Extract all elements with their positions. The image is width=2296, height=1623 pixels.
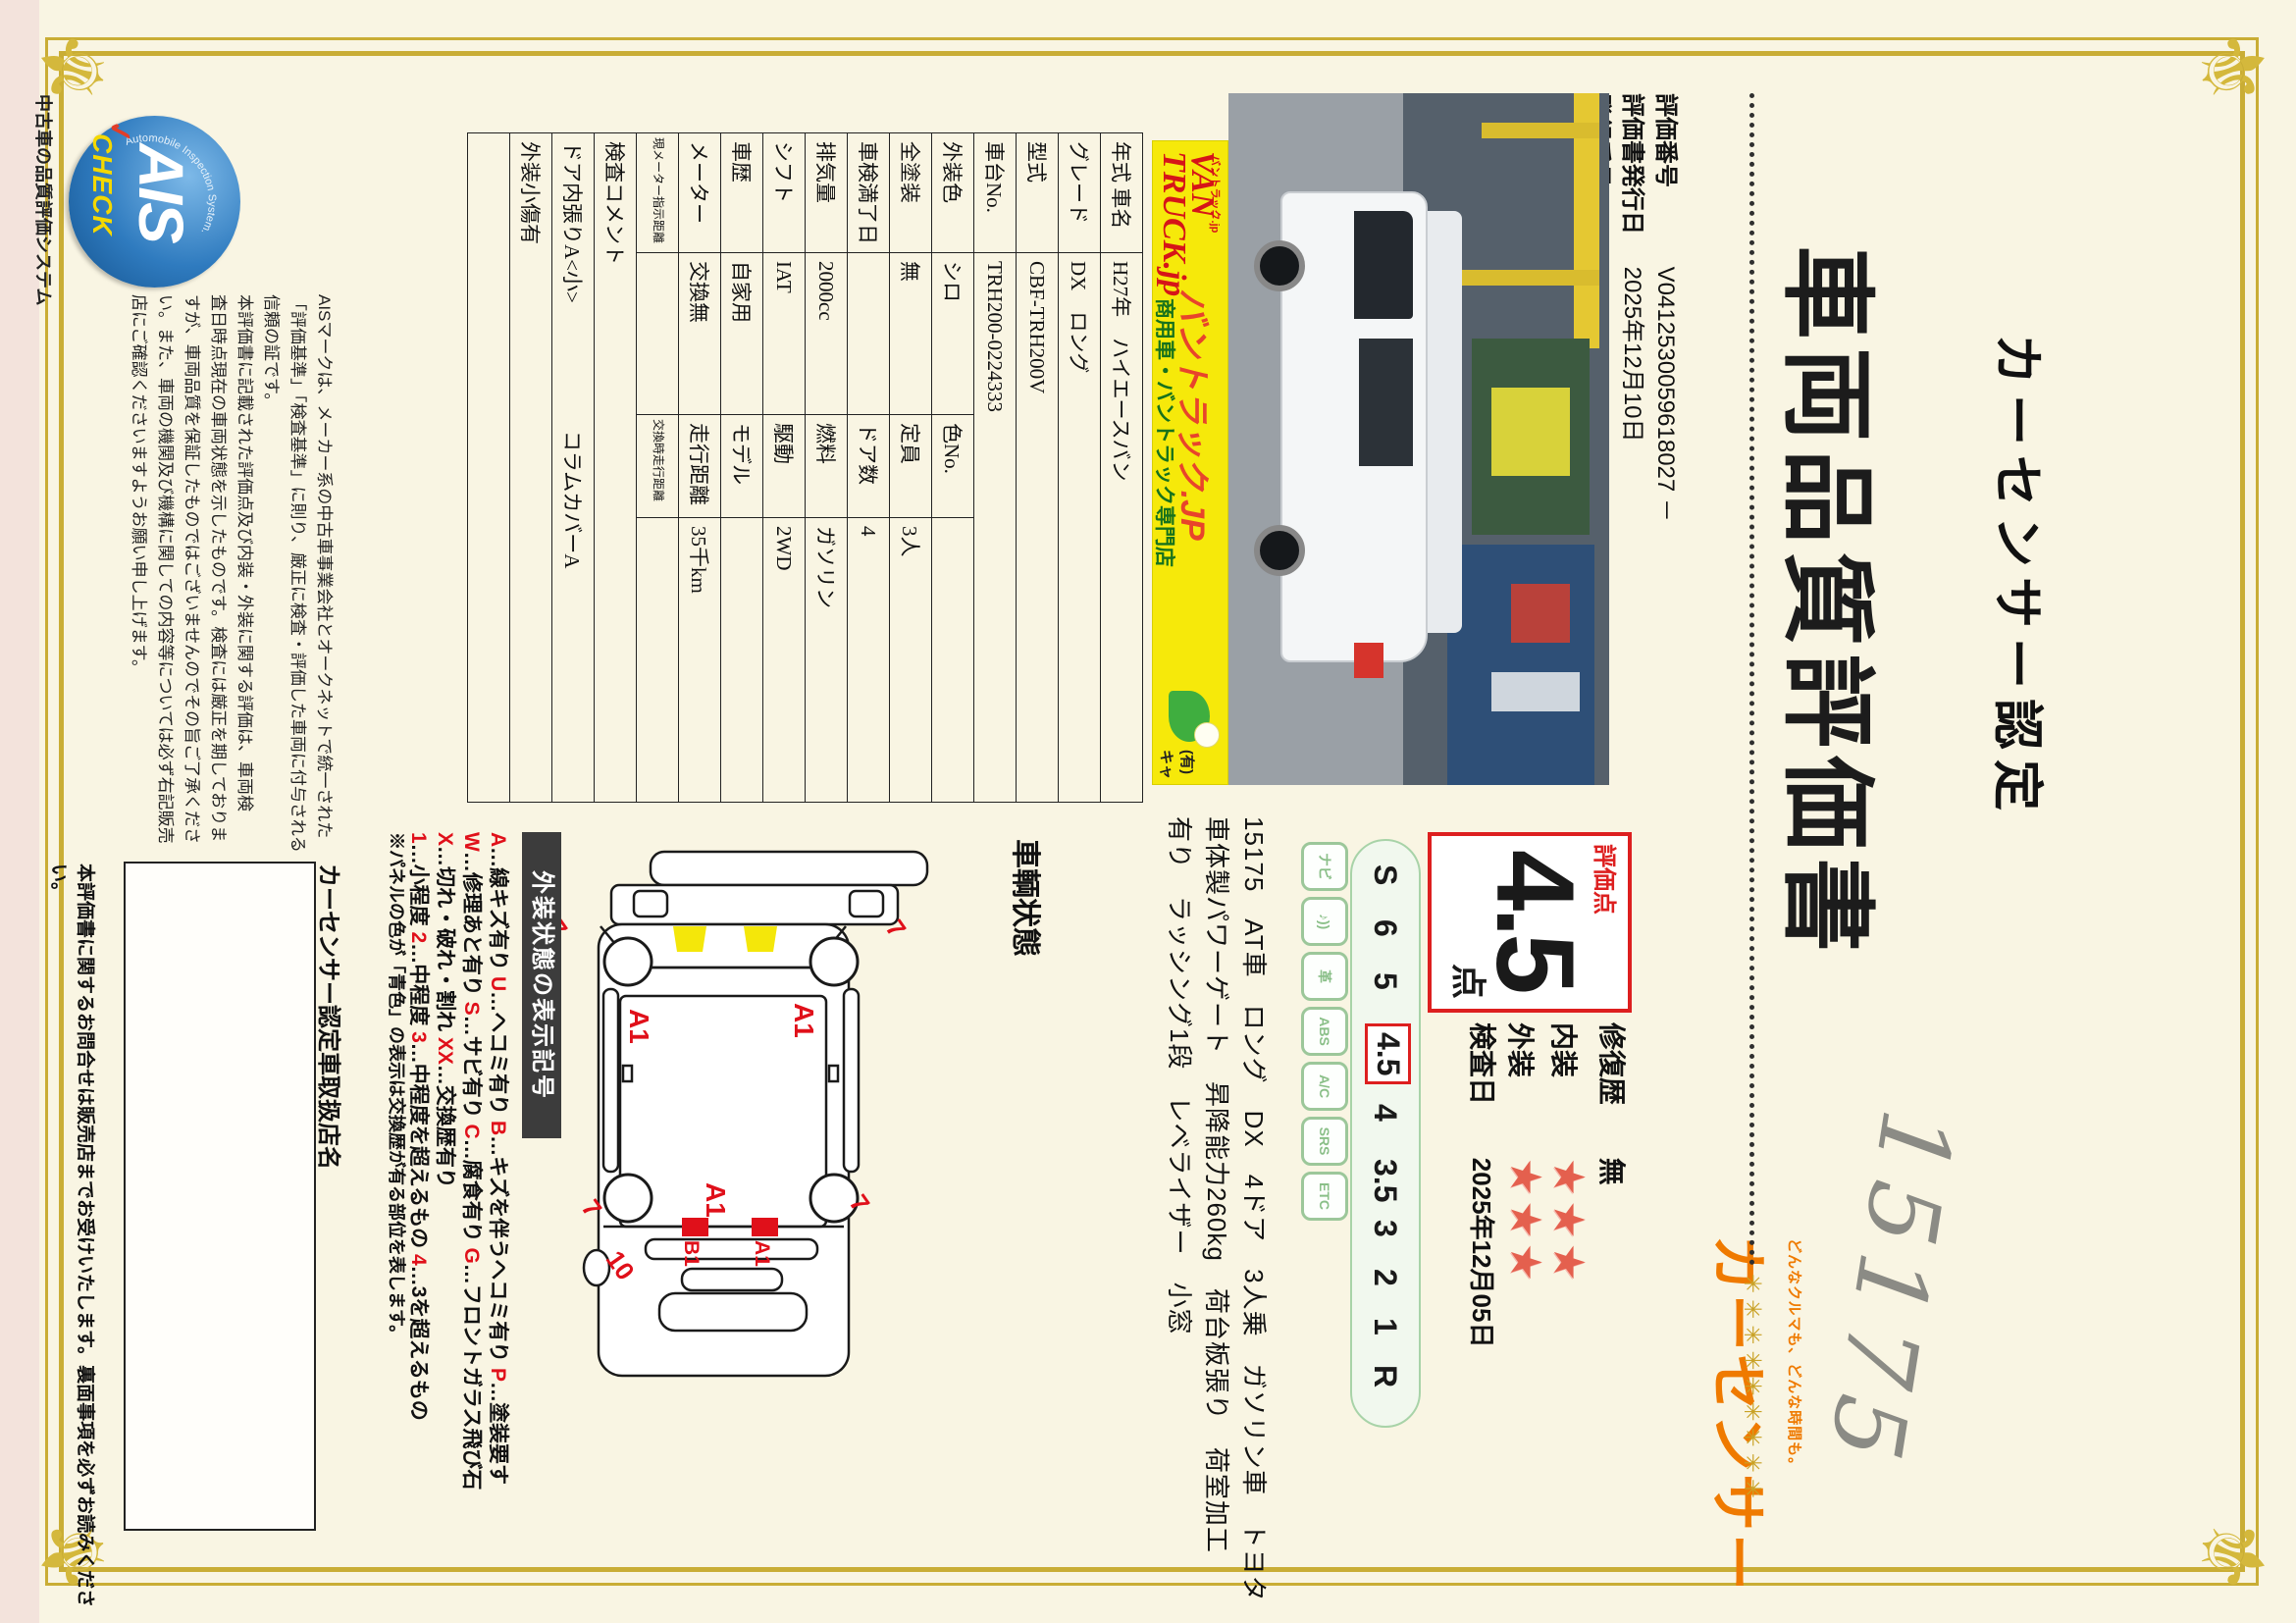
spec-cell: 車台No. (974, 133, 1017, 253)
interior-label: 内装 (1545, 1022, 1585, 1150)
spec-cell: 燃料 (806, 415, 848, 518)
legend-description: …腐食有り (460, 1139, 483, 1248)
spec-cell: 2000cc (806, 253, 848, 415)
legend-row: A…線キズ有り U…ヘコミ有り B…キズを伴うヘコミ有り P…塗装要す (485, 832, 514, 1485)
evaluation-number-value: V0412530059618027 － (1652, 267, 1679, 522)
disclaimer-text: AISマークは、メーカー系の中古車事業会社とオークネットで統一された「評価基準」… (126, 294, 338, 854)
spec-cell (721, 518, 763, 803)
spec-comment-row: 外装小傷有 (510, 133, 552, 803)
spec-row: グレードDX ロング (1059, 133, 1101, 803)
spec-cell: 2WD (763, 518, 806, 803)
photo-crane-post (1462, 270, 1599, 286)
legend-description: …線キズ有り (487, 847, 509, 976)
spec-cell: 3人 (890, 518, 932, 803)
vantruck-banner: バントラック.jp VAN TRUCK.jp バントラック.JP 商用車・バント… (1152, 140, 1228, 785)
damage-code: A1 (751, 1240, 773, 1267)
spec-cell (848, 253, 890, 415)
spec-row: シフトIAT駆動2WD (763, 133, 806, 803)
vehicle-photo (1228, 93, 1609, 785)
headlight (850, 891, 883, 916)
spec-cell: 色No. (932, 415, 974, 518)
disclaimer-line: すが、車両品質を保証したものではございませんのでその旨ご了承くださ (179, 294, 205, 854)
legend-description: …小程度 (407, 844, 430, 932)
spec-row: 車歴自家用モデル (721, 133, 763, 803)
van-side-window (1359, 339, 1413, 466)
spec-row: 現メーター指示距離交換時走行距離 (637, 133, 679, 803)
exterior-rating-row: 外装 ★★★ (1500, 1022, 1550, 1285)
van-windshield (1354, 211, 1413, 319)
disclaimer-line: い。また、車両の機関及び機構に関しての内容等については必ず右記販売 (152, 294, 179, 854)
dealer-name-box (124, 862, 316, 1531)
banner-subtitle: 商用車・バントラック専門店 (1152, 298, 1180, 567)
van-wheel (1254, 525, 1305, 576)
van-wheel (1254, 240, 1305, 291)
legend-symbol: 2 (407, 932, 430, 944)
legend-description: …中程度 (407, 943, 430, 1031)
repair-history-label: 修復歴 (1593, 1022, 1633, 1150)
spec-row: 全塗装無定員3人 (890, 133, 932, 803)
exterior-label: 外装 (1502, 1022, 1541, 1150)
gate-bar (682, 1269, 782, 1290)
legend-symbol: U (487, 976, 509, 991)
spec-cell: CBF-TRH200V (1017, 253, 1059, 803)
spec-table: 年式 車名H27年 ハイエースバングレードDX ロング型式CBF-TRH200V… (467, 132, 1143, 803)
ais-check-label: CHECK (86, 133, 118, 236)
door-handle (829, 1066, 838, 1081)
legend-description: …フロントガラス飛び石 (460, 1264, 483, 1491)
spec-cell: モデル (721, 415, 763, 518)
disclaimer-line: 店にご確認くださいますようお願い申し上げます。 (126, 294, 152, 854)
certification-label: カーセンサー認定 (1985, 334, 2059, 1001)
fleur-de-lis-icon: ⚜ (2175, 17, 2288, 124)
spec-row: メーター交換無走行距離35千km (679, 133, 721, 803)
spec-cell: 型式 (1017, 133, 1059, 253)
side-rail-top (844, 989, 859, 1172)
spec-row: 車検満了日ドア数4 (848, 133, 890, 803)
legend-description: …切れ・破れ・割れ (434, 846, 456, 1037)
legend-description: …サビ有り (460, 1016, 483, 1125)
legend-description: …塗装要す (487, 1382, 509, 1485)
equipment-line-2: 車体製パワーゲート 昇降能力260kg 荷台板張り 荷室加工 (1200, 816, 1236, 1553)
page-title: 車両品質評価書 (1767, 245, 1904, 1050)
power-gate-platform (659, 1293, 807, 1331)
spec-row: 排気量2000cc燃料ガソリン (806, 133, 848, 803)
spec-comment-cell: 検査コメント (595, 133, 637, 803)
banner-company: (有)キャン (1152, 750, 1198, 784)
inspection-date-value: 2025年12月05日 (1467, 1158, 1496, 1348)
scale-value: 3.5 (1367, 1159, 1403, 1202)
spec-cell: グレード (1059, 133, 1101, 253)
legend-symbol: G (460, 1248, 483, 1264)
rating-score-unit: 点 (1445, 964, 1496, 999)
inspection-date-row: 検査日 2025年12月05日 (1464, 1022, 1503, 1347)
spec-comment-cell (468, 133, 510, 803)
scale-selected-value: 4.5 (1365, 1023, 1411, 1084)
etc-icon: ETC (1301, 1172, 1348, 1221)
rating-score-box: 評価点 4.5 点 (1428, 832, 1632, 1013)
legend-description: …3を超えるもの (407, 1266, 430, 1421)
spec-cell: 駆動 (763, 415, 806, 518)
scale-value: 5 (1367, 972, 1403, 990)
spec-cell: シフト (763, 133, 806, 253)
legend-description: …中程度を超えるもの (407, 1043, 430, 1254)
legend-symbol: C (460, 1125, 483, 1139)
legend-description: …交換歴有り (434, 1065, 456, 1188)
spec-cell: 現メーター指示距離 (637, 133, 679, 253)
wheel (810, 938, 858, 985)
legend-row: W…修理あと有り S…サビ有り C…腐食有り G…フロントガラス飛び石 (458, 832, 488, 1490)
spec-cell: 年式 車名 (1101, 133, 1143, 253)
damage-code: A1 (789, 1003, 819, 1038)
banner-logo-text: VAN TRUCK.jp (1159, 151, 1216, 296)
interior-rating-row: 内装 ★★★ (1543, 1022, 1593, 1285)
spec-cell: 車歴 (721, 133, 763, 253)
spec-cell (932, 518, 974, 803)
front-bumper (651, 852, 927, 885)
issue-date-value: 2025年12月10日 (1619, 267, 1645, 443)
legend-symbol: 4 (407, 1254, 430, 1266)
scanned-certificate: ⚜ ⚜ ⚜ ⚜ カーセンサー認定 車両品質評価書 どんなクルマも、どんな時間も。… (0, 0, 2296, 1623)
navi-icon: ナビ (1301, 842, 1348, 891)
scale-value: R (1367, 1365, 1403, 1387)
legend-symbol: A (487, 832, 509, 847)
legend-description: …ヘコミ有り (487, 991, 509, 1121)
fleur-de-lis-icon: ⚜ (2175, 1499, 2288, 1606)
vehicle-diagram: A1 A1 A1 A1 B1 7 7 7 7 10 (525, 824, 1060, 1442)
photo-truckbed (1447, 545, 1594, 785)
side-rail-bottom (603, 989, 618, 1172)
spec-cell: ドア数 (848, 415, 890, 518)
legend-row: X…切れ・破れ・割れ XX…交換歴有り (432, 832, 461, 1188)
audio-icon: ♪)) (1301, 897, 1348, 946)
door-handle (623, 1066, 632, 1081)
equipment-line-1: 15175 AT車 ロング DX 4ドア 3人乗 ガソリン車 トヨタ (1237, 816, 1274, 1602)
spec-cell: シロ (932, 253, 974, 415)
abs-icon: ABS (1301, 1007, 1348, 1056)
damage-code: A1 (624, 1009, 654, 1044)
inspection-date-label: 検査日 (1464, 1022, 1503, 1150)
damage-code: A1 (701, 1182, 731, 1218)
disclaimer-line: 査日時点現在の車両状態を示したものです。検査には厳正を期しておりま (205, 294, 232, 854)
photo-shop-sign (1491, 388, 1570, 476)
spec-cell: 車検満了日 (848, 133, 890, 253)
spec-cell: 定員 (890, 415, 932, 518)
airbag-icon: SRS (1301, 1117, 1348, 1166)
spec-comment-row: ドア内張りA<小>コラムカバーA (552, 133, 595, 803)
photo-crane-post (1482, 123, 1599, 138)
legend-symbol: S (460, 1002, 483, 1016)
spec-cell: TRH200-0224333 (974, 253, 1017, 803)
legend-symbol: B (487, 1121, 509, 1135)
repair-history-row: 修復歴 無 (1593, 1022, 1633, 1185)
issue-date-row: 評価書発行日 2025年12月10日 (1618, 93, 1652, 442)
spec-row: 型式CBF-TRH200V (1017, 133, 1059, 803)
legend-symbol: X (434, 832, 456, 846)
scale-value: 3 (1367, 1220, 1403, 1237)
van-tail-lamp (1354, 643, 1383, 678)
legend-note: ※パネルの色が「青色」の表示は交換歴が有る部位を表します。 (385, 832, 410, 1342)
issue-date-label: 評価書発行日 (1618, 93, 1652, 260)
disclaimer-line: AISマークは、メーカー系の中古車事業会社とオークネットで統一された (311, 294, 338, 854)
spec-comment-extra: コラムカバーA (560, 303, 584, 569)
spec-cell (637, 253, 679, 415)
legend-symbol: XX (434, 1037, 456, 1065)
damage-code: B1 (680, 1240, 703, 1267)
scale-value: 2 (1367, 1269, 1403, 1286)
ais-logo: Automobile Inspection System. AIS ✓ CHEC… (69, 116, 240, 288)
legend-description: …修理あと有り (460, 852, 483, 1002)
banner-truck: TRUCK.jp (1156, 151, 1192, 296)
spec-cell: 交換時走行距離 (637, 415, 679, 518)
spec-cell: 走行距離 (679, 415, 721, 518)
banner-mascot-face (1194, 722, 1220, 748)
legend-header: 外装状態の表示記号 (522, 832, 561, 1138)
spec-cell: DX ロング (1059, 253, 1101, 803)
spec-row: 年式 車名H27年 ハイエースバン (1101, 133, 1143, 803)
scale-value: 1 (1367, 1318, 1403, 1335)
scale-value: S (1367, 864, 1403, 885)
legend-symbol: W (460, 832, 483, 852)
photo-mast (1491, 672, 1580, 711)
stars-decoration: ✳✳✳✳✳✳✳✳✳ (1738, 1274, 1766, 1504)
damage-yellow-mark (673, 926, 706, 952)
spec-comment-row (468, 133, 510, 803)
spec-cell: IAT (763, 253, 806, 415)
disclaimer-line: 「評価基準」「検査基準」に則り、厳正に検査・評価した車両に付与される (285, 294, 311, 854)
headlight (634, 891, 667, 916)
dealer-name-label: カーセンサー認定車取扱店名 (314, 864, 348, 1170)
spec-cell: 自家用 (721, 253, 763, 415)
repair-history-value: 無 (1596, 1158, 1627, 1185)
damage-red-mark (752, 1218, 778, 1236)
spec-cell: 交換無 (679, 253, 721, 415)
spec-comment-cell: ドア内張りA<小>コラムカバーA (552, 133, 595, 803)
spec-cell: 外装色 (932, 133, 974, 253)
spec-cell: 排気量 (806, 133, 848, 253)
rear-bumper (646, 1239, 817, 1259)
spec-cell: 無 (890, 253, 932, 415)
spec-cell: ガソリン (806, 518, 848, 803)
spec-row: 車台No.TRH200-0224333 (974, 133, 1017, 803)
equipment-icons: ナビ♪))革ABSA/CSRSETC (1297, 842, 1348, 1234)
equipment-line-3: 有り ラッシング1段 レベライザー 小窓 (1163, 816, 1199, 1335)
disclaimer-line: 本評価書に記載された評価点及び内装・外装に関する評価は、車両検 (232, 294, 258, 854)
wheel (604, 938, 652, 985)
spec-cell: 4 (848, 518, 890, 803)
leather-seat-icon: 革 (1301, 952, 1348, 1001)
spec-comment-cell: 外装小傷有 (510, 133, 552, 803)
spec-cell: 35千km (679, 518, 721, 803)
spec-cell (637, 518, 679, 803)
ac-icon: A/C (1301, 1062, 1348, 1111)
legend-symbol: 3 (407, 1031, 430, 1043)
spec-row: 外装色シロ色No. (932, 133, 974, 803)
spec-cell: メーター (679, 133, 721, 253)
carsensor-slogan: どんなクルマも、どんな時間も。 (1785, 1238, 1805, 1473)
dotted-separator (1749, 93, 1754, 1266)
spec-comment-row: 検査コメント (595, 133, 637, 803)
legend-description: …キズを伴うヘコミ有り (487, 1135, 509, 1368)
photo-cargo (1511, 584, 1570, 643)
rating-scale: S654.543.5321R (1350, 839, 1421, 1428)
evaluation-number-row: 評価番号 V0412530059618027 － (1651, 93, 1686, 522)
spec-cell: 全塗装 (890, 133, 932, 253)
damage-red-mark (682, 1218, 708, 1236)
evaluation-number-label: 評価番号 (1651, 93, 1686, 260)
certificate-page: ⚜ ⚜ ⚜ ⚜ カーセンサー認定 車両品質評価書 どんなクルマも、どんな時間も。… (0, 0, 2296, 1623)
damage-yellow-mark (744, 926, 777, 952)
ais-wordmark: AIS (125, 143, 197, 242)
legend-symbol: 1 (407, 832, 430, 844)
disclaimer-line: 信頼の証です。 (258, 294, 285, 854)
exterior-stars: ★★★ (1501, 1158, 1549, 1285)
interior-stars: ★★★ (1544, 1158, 1592, 1285)
ais-caption: 中古車の品質評価システム (31, 94, 57, 305)
scale-value: 4 (1367, 1104, 1403, 1122)
wheel (604, 1175, 652, 1222)
scale-value: 6 (1367, 919, 1403, 937)
legend-symbol: P (487, 1368, 509, 1382)
spec-cell: H27年 ハイエースバン (1101, 253, 1143, 803)
bottom-note: 本評価書に関するお問合せは販売店までお受けいたします。裏面事項を必ずお読みくださ… (47, 864, 100, 1623)
